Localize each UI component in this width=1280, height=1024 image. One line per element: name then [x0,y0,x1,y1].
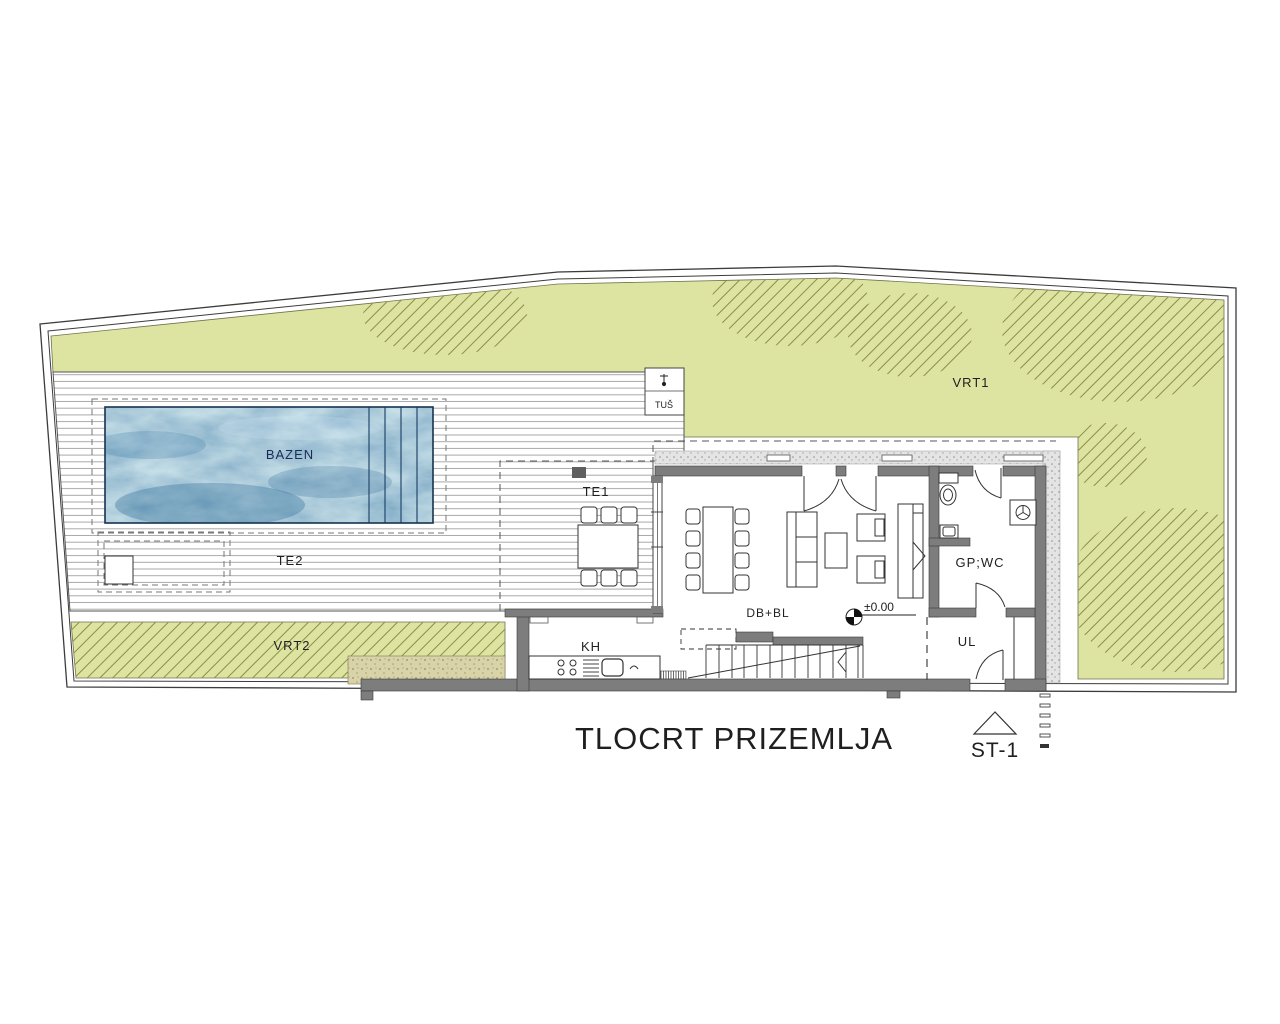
column [572,467,586,478]
wardrobe [898,504,925,598]
label-entry: UL [958,634,977,649]
floor-plan-drawing: TUŠ BAZEN [0,0,1280,1024]
threshold-grate [660,671,686,679]
label-garden-2: VRT2 [274,638,311,653]
deck-equipment-box [105,556,133,584]
label-garden-1: VRT1 [953,375,990,390]
coffee-table [825,533,847,568]
label-terrace-1: TE1 [583,484,610,499]
label-pool: BAZEN [266,447,314,462]
label-wc: GP;WC [955,555,1004,570]
label-terrace-2: TE2 [277,553,304,568]
sink [602,659,623,676]
label-stair-marker: ST-1 [971,739,1019,762]
label-shower: TUŠ [655,400,673,410]
pool: BAZEN [94,407,433,527]
label-elevation: ±0.00 [864,600,894,614]
drawing-title: TLOCRT PRIZEMLJA [575,721,893,756]
label-dining-living: DB+BL [746,606,789,620]
toilet-tank [939,473,958,483]
outdoor-shower: TUŠ [645,368,684,415]
glass-wall [651,476,663,613]
label-kitchen: KH [581,639,601,654]
floor-plan-sheet: TUŠ BAZEN [0,0,1280,1024]
